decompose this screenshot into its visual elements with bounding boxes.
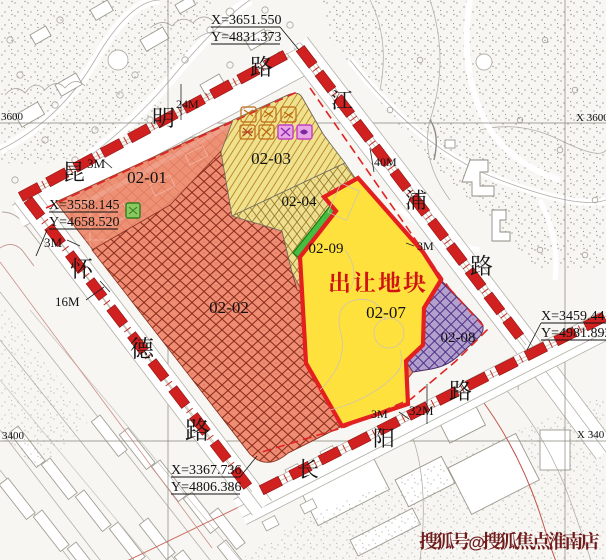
svg-text:02-09: 02-09: [309, 241, 344, 257]
svg-text:02-01: 02-01: [127, 168, 167, 187]
svg-text:Y=4981.892: Y=4981.892: [541, 326, 606, 341]
svg-text:X=3558.145: X=3558.145: [49, 198, 120, 213]
svg-text:X=3459.441: X=3459.441: [541, 309, 606, 324]
svg-text:16M: 16M: [55, 294, 80, 309]
svg-text:3M: 3M: [44, 235, 63, 250]
svg-text:Y=4806.386: Y=4806.386: [171, 480, 242, 495]
svg-text:@: @: [468, 533, 485, 552]
svg-text:40M: 40M: [374, 155, 397, 169]
svg-text:02-08: 02-08: [441, 330, 476, 346]
svg-text:02-04: 02-04: [282, 194, 317, 210]
svg-text:3M: 3M: [87, 156, 106, 171]
svg-text:02-03: 02-03: [251, 149, 291, 168]
svg-text:X 340: X 340: [577, 429, 605, 441]
svg-text:24M: 24M: [176, 97, 199, 111]
svg-text:3600: 3600: [1, 111, 24, 123]
svg-text:Y=4831.373: Y=4831.373: [211, 30, 282, 45]
svg-text:X=3367.736: X=3367.736: [171, 463, 242, 478]
svg-text:02-02: 02-02: [209, 298, 249, 317]
svg-text:X 3600: X 3600: [576, 112, 606, 124]
svg-text:Y=4658.520: Y=4658.520: [49, 215, 120, 230]
svg-text:3M: 3M: [417, 239, 434, 253]
svg-text:02-07: 02-07: [366, 303, 406, 322]
svg-text:X=3651.550: X=3651.550: [211, 13, 282, 28]
svg-text:3400: 3400: [2, 430, 25, 442]
svg-text:3M: 3M: [371, 407, 388, 421]
svg-text:32M: 32M: [409, 403, 434, 418]
